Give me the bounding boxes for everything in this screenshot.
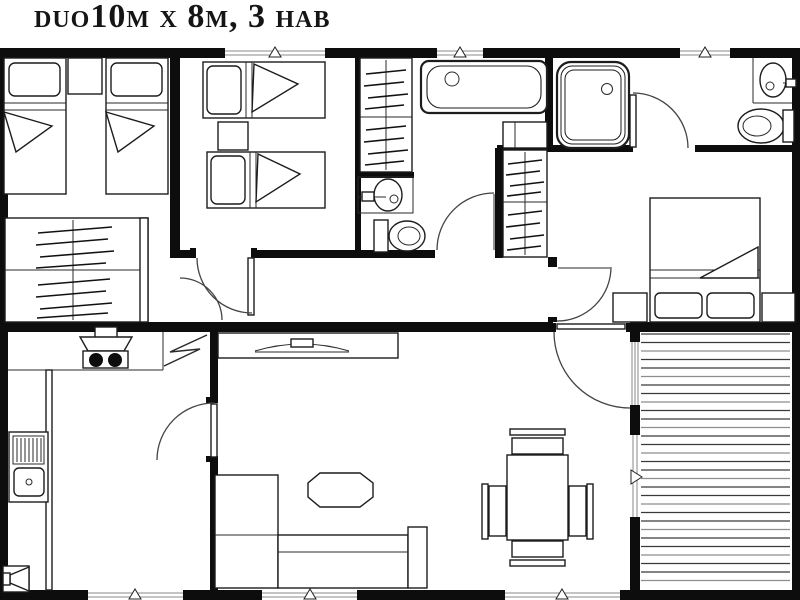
window-living bbox=[262, 589, 357, 599]
wardrobe bbox=[5, 218, 148, 322]
terrace-decking bbox=[641, 334, 790, 581]
extractor-hood bbox=[80, 337, 132, 351]
dining-set bbox=[482, 429, 593, 566]
shelf-cell bbox=[503, 122, 547, 148]
kitchen bbox=[3, 327, 207, 592]
bedroom-1 bbox=[4, 58, 168, 322]
door-living-hallway bbox=[548, 323, 634, 408]
sofa-seat bbox=[278, 535, 408, 588]
cooktop bbox=[83, 351, 128, 368]
chair bbox=[569, 484, 593, 539]
chair bbox=[482, 484, 506, 539]
dining-table bbox=[507, 455, 568, 540]
shower-tray bbox=[557, 62, 629, 148]
tap bbox=[362, 192, 374, 201]
window-dining bbox=[505, 589, 620, 599]
bedroom-2 bbox=[203, 62, 325, 208]
floor-plan-sheet: duo10m x 8m, 3 hab bbox=[0, 0, 800, 600]
nightstand bbox=[613, 293, 647, 322]
bathroom-2 bbox=[557, 58, 797, 148]
tap bbox=[786, 79, 796, 87]
door-kitchen bbox=[157, 397, 218, 462]
window-bathroom1 bbox=[437, 47, 483, 57]
corner-unit bbox=[3, 566, 29, 592]
washbasin bbox=[753, 58, 797, 103]
nightstand bbox=[762, 293, 795, 322]
hall-wardrobe-column bbox=[503, 122, 547, 257]
cistern bbox=[783, 110, 794, 142]
window-bathroom2 bbox=[680, 47, 730, 57]
washbasin bbox=[358, 177, 413, 213]
chair bbox=[510, 541, 565, 566]
living-dining bbox=[215, 333, 593, 588]
refrigerator bbox=[164, 335, 207, 366]
pillow bbox=[655, 293, 702, 318]
door-master-bedroom bbox=[557, 267, 611, 321]
tv-stand bbox=[291, 339, 313, 347]
armrest bbox=[408, 527, 427, 588]
chair bbox=[510, 429, 565, 454]
basin bbox=[14, 468, 44, 496]
pillow bbox=[707, 293, 754, 318]
door-bathroom2 bbox=[630, 93, 688, 148]
toilet bbox=[738, 109, 794, 143]
door-bathroom1 bbox=[437, 193, 494, 250]
single-bed bbox=[106, 58, 168, 194]
single-bed bbox=[207, 152, 325, 208]
sliding-entrance-door bbox=[632, 342, 638, 405]
wardrobe bbox=[360, 58, 412, 172]
drainer-ribs bbox=[17, 438, 41, 462]
window-terrace-wall bbox=[631, 435, 642, 517]
kitchen-sink bbox=[9, 432, 48, 502]
nightstand bbox=[68, 58, 102, 94]
window-bedroom2 bbox=[225, 47, 325, 57]
single-bed bbox=[4, 58, 66, 194]
master-bedroom bbox=[613, 198, 795, 322]
door-bedroom2 bbox=[190, 248, 257, 315]
double-bed bbox=[650, 198, 760, 322]
bathtub bbox=[421, 61, 547, 113]
coffee-table bbox=[308, 473, 373, 507]
chaise bbox=[215, 475, 278, 588]
floor-plan bbox=[0, 0, 800, 600]
window-kitchen bbox=[88, 589, 183, 599]
toilet bbox=[374, 220, 425, 252]
single-bed bbox=[203, 62, 325, 118]
nightstand bbox=[218, 122, 248, 150]
tv-cabinet bbox=[218, 333, 398, 358]
cistern bbox=[374, 220, 388, 252]
